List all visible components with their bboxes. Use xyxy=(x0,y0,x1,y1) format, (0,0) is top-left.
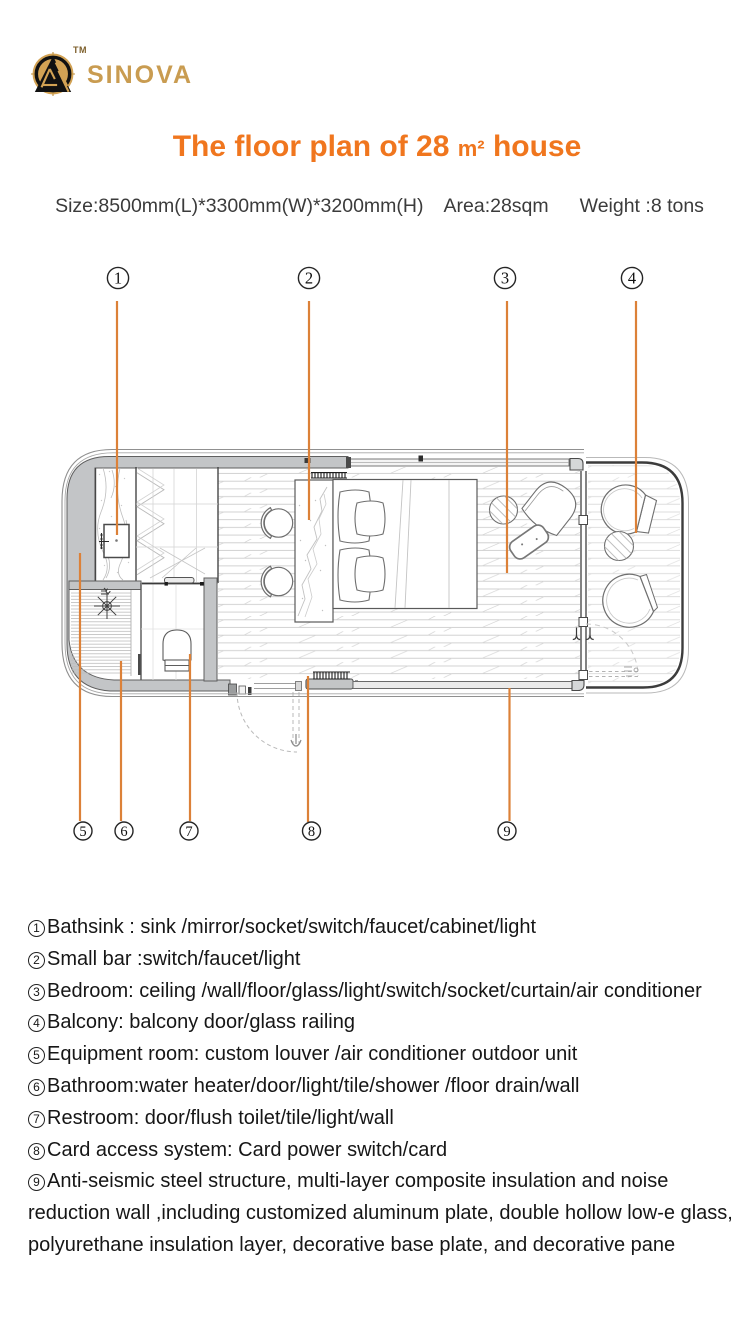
svg-text:2: 2 xyxy=(305,269,313,288)
svg-text:8: 8 xyxy=(308,824,315,840)
svg-text:7: 7 xyxy=(185,824,192,840)
svg-text:4: 4 xyxy=(628,269,636,288)
svg-text:5: 5 xyxy=(79,824,86,840)
svg-text:3: 3 xyxy=(501,269,509,288)
svg-text:9: 9 xyxy=(503,824,510,840)
svg-text:1: 1 xyxy=(114,269,122,288)
svg-text:6: 6 xyxy=(120,824,127,840)
